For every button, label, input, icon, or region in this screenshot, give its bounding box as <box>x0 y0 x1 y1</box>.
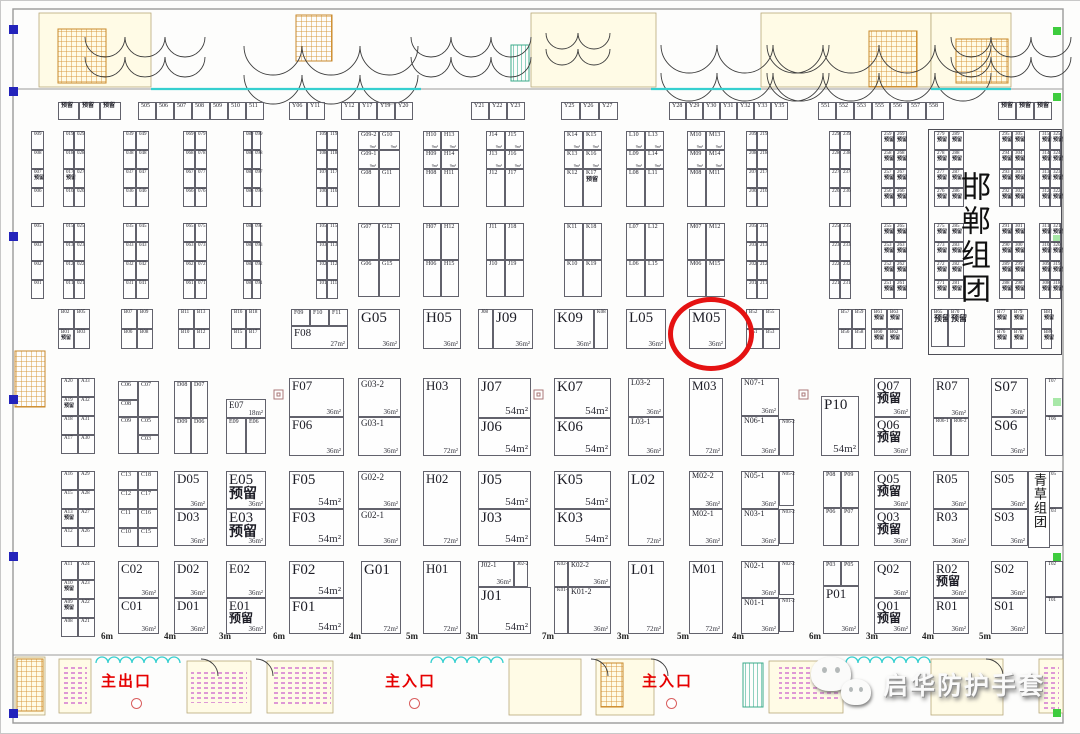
booth-cell-label: 013 <box>66 243 74 249</box>
booth-cell-232: 232 <box>840 261 851 280</box>
booth-cell-label: B62 <box>890 330 898 336</box>
booth-cell-label: 025 <box>77 224 85 230</box>
booth-L02: L0272m² <box>628 471 664 546</box>
booth-area: 36m² <box>1010 590 1025 597</box>
booth-cell-H10: H109m² <box>423 131 441 150</box>
booth-cell-label: B11 <box>181 310 189 316</box>
booth-label: F10 <box>313 310 322 317</box>
booth-cell-label: 552 <box>839 103 848 110</box>
booth-cell-label: Y12 <box>344 103 354 110</box>
booth-label: Q02 <box>877 562 899 577</box>
booth-cell-L08: L08 <box>626 169 645 207</box>
booth-cell-C11: C11 <box>118 509 138 528</box>
booth-cell-207: 207 <box>746 169 757 188</box>
booth-K03: K0354m² <box>554 509 611 546</box>
booth-cell-预留: 预留 <box>58 102 79 120</box>
booth-cell-area: 9m² <box>716 164 722 168</box>
booth-cell-205: 205 <box>746 223 757 242</box>
booth-cell-106: 106 <box>316 188 327 207</box>
booth-label: P01 <box>826 587 846 602</box>
booth-D01: D0136m² <box>174 598 208 634</box>
booth-cell-label: A33 <box>81 379 90 385</box>
booth-cell-label: 212 <box>760 262 768 268</box>
booth-K08: K08 <box>594 309 608 349</box>
booth-cell-A13: A13预留 <box>61 509 78 528</box>
booth-area: 72m² <box>443 538 458 545</box>
booth-H01: H0172m² <box>423 561 461 634</box>
booth-cell-093: 093 <box>252 242 261 261</box>
booth-label: K09 <box>557 310 583 327</box>
booth-label: F03 <box>292 510 315 527</box>
booth-label: G05 <box>361 310 387 327</box>
booth-C06: C06 <box>118 381 138 400</box>
booth-cell-label: M14 <box>709 151 720 158</box>
aisle-width-label: 3m <box>866 631 878 641</box>
booth-label: S02 <box>994 562 1014 577</box>
booth-cell-118: 118 <box>327 150 338 169</box>
booth-D06: D06 <box>191 418 208 454</box>
booth-cell-label: C17 <box>141 491 151 498</box>
booth-P09: P09 <box>841 471 859 508</box>
booth-cell-A28: A28 <box>78 490 95 509</box>
booth-cell-label: 005 <box>34 224 42 230</box>
booth-cell-091: 091 <box>252 280 261 299</box>
booth-cell-043: 043 <box>136 242 149 261</box>
booth-cell-069: 069 <box>183 131 195 150</box>
booth-cell-H12: H12 <box>441 223 459 260</box>
booth-cell-A24: A24 <box>78 561 95 580</box>
booth-cell-area: 9m² <box>697 164 703 168</box>
booth-cell-label: J10 <box>489 261 497 268</box>
booth-cell-K16: K169m² <box>583 150 602 169</box>
booth-cell-A12: A12 <box>61 528 78 547</box>
booth-cell-G07: G07 <box>358 223 379 260</box>
booth-cell-label: B18 <box>249 310 257 316</box>
booth-area: 36m² <box>1010 626 1025 633</box>
booth-Q01: Q01预留36m² <box>874 598 911 634</box>
reserved-label: 预留 <box>897 176 907 182</box>
booth-cell-label: J11 <box>489 224 497 231</box>
booth-cell-086: 086 <box>243 188 252 207</box>
booth-area: 36m² <box>761 408 776 415</box>
booth-cell-label: 096 <box>255 189 263 195</box>
booth-cell-label: Y20 <box>398 103 408 110</box>
booth-cell-012: 012 <box>63 261 74 280</box>
booth-label: J09 <box>496 310 517 327</box>
booth-cell-label: 215 <box>760 224 768 230</box>
booth-cell-label: 259 <box>884 132 892 138</box>
booth-cell-J14: J149m² <box>486 131 505 150</box>
reserved-label: 预留 <box>64 404 74 410</box>
booth-label: L05 <box>629 310 653 327</box>
booth-cell-label: H08 <box>426 170 436 177</box>
booth-cell-label: 227 <box>832 170 840 176</box>
reserved-label: 预留 <box>897 138 907 144</box>
booth-area: 54m² <box>585 406 608 417</box>
aisle-width-label: 3m <box>617 631 629 641</box>
booth-label: N06-1 <box>744 417 764 426</box>
booth-H02: H0272m² <box>423 471 461 546</box>
booth-cell-K18: K18 <box>583 223 602 260</box>
booth-cell-505: 505 <box>138 102 156 120</box>
booth-N05-1: N05-136m² <box>741 471 779 509</box>
booth-cell-039: 039 <box>123 131 136 150</box>
booth-cell-label: 112 <box>330 262 337 268</box>
booth-cell-Y33: Y33 <box>754 102 771 120</box>
booth-cell-label: 072 <box>198 262 206 268</box>
booth-cell-label: G06 <box>361 261 371 268</box>
booth-cell-G09-1: G09-19m² <box>358 150 379 169</box>
booth-cell-label: Y19 <box>380 103 390 110</box>
booth-cell-label: 555 <box>875 103 884 110</box>
booth-cell-Y30: Y30 <box>703 102 720 120</box>
booth-label: K03 <box>557 510 583 527</box>
booth-cell-036: 036 <box>123 188 136 207</box>
booth-area: 36m² <box>1010 448 1025 455</box>
booth-label: N02-2 <box>782 562 795 568</box>
booth-cell-038: 038 <box>123 150 136 169</box>
booth-cell-label: K13 <box>567 151 577 158</box>
booth-cell-101: 101 <box>316 280 327 299</box>
booth-label: R06-2 <box>954 419 967 425</box>
booth-cell-label: 037 <box>126 170 134 176</box>
booth-cell-label: Y30 <box>706 103 716 110</box>
booth-N06-2: N06-2 <box>779 419 794 456</box>
booth-cell-area: 9m² <box>593 145 599 149</box>
booth-cell-label: 258 <box>884 151 892 157</box>
booth-label: R03 <box>936 510 958 525</box>
booth-L03-1: L03-136m² <box>628 417 664 456</box>
booth-cell-A11: A11 <box>61 561 78 580</box>
booth-cell-label: G07 <box>361 224 371 231</box>
booth-S01: S0136m² <box>991 598 1028 634</box>
aisle-width-label: 5m <box>677 631 689 641</box>
reserved-label: 预留 <box>874 316 884 322</box>
booth-P03: P03 <box>823 561 841 586</box>
booth-layer: G0536m²H0536m²J08J0936m²K0936m²K08L0536m… <box>1 1 1080 733</box>
booth-cell-J17: J17 <box>505 169 524 207</box>
reserved-label: 预留 <box>586 177 598 184</box>
booth-cell-J19: J19 <box>505 260 524 297</box>
booth-cell-label: 105 <box>319 224 327 230</box>
booth-cell-label: B57 <box>841 310 849 316</box>
reserved-label: 预留 <box>877 431 901 444</box>
booth-cell-229: 229 <box>829 131 840 150</box>
booth-cell-label: Y11 <box>310 103 320 110</box>
booth-cell-label: 049 <box>139 132 147 138</box>
booth-cell-B57: B57 <box>838 309 852 329</box>
booth-label: K06 <box>557 419 583 436</box>
booth-cell-area: 9m² <box>655 145 661 149</box>
booth-cell-506: 506 <box>156 102 174 120</box>
booth-cell-212: 212 <box>757 261 768 280</box>
booth-cell-Y32: Y32 <box>737 102 754 120</box>
booth-F10: F10 <box>310 309 329 326</box>
booth-label: D03 <box>177 510 199 525</box>
booth-cell-label: 219 <box>760 132 768 138</box>
booth-cell-A10: A10预留 <box>61 580 78 599</box>
booth-cell-B09: B09 <box>137 309 153 329</box>
reserved-label: 预留 <box>897 157 907 163</box>
reserved-label: 预留 <box>897 195 907 201</box>
booth-cell-C17: C17 <box>138 490 158 509</box>
aisle-width-label: 6m <box>809 631 821 641</box>
booth-cell-C18: C18 <box>138 471 158 490</box>
booth-cell-label: 预留 <box>1037 103 1049 110</box>
booth-cell-label: Y21 <box>474 103 484 110</box>
booth-L01: L0172m² <box>628 561 664 634</box>
booth-Q07: Q07预留36m² <box>874 378 911 417</box>
booth-cell-area: 9m² <box>515 164 521 168</box>
reserved-label: 预留 <box>229 612 253 625</box>
booth-cell-label: L08 <box>629 170 639 177</box>
aisle-width-label: 5m <box>979 631 991 641</box>
booth-cell-label: A29 <box>81 472 90 478</box>
booth-cell-label: 099 <box>255 132 263 138</box>
booth-label: S03 <box>994 510 1014 525</box>
booth-cell-B07: B07 <box>121 309 137 329</box>
booth-cell-B59: B59 <box>852 309 866 329</box>
booth-cell-label: 028 <box>77 151 85 157</box>
booth-cell-025: 025 <box>74 223 85 242</box>
booth-cell-label: 551 <box>821 103 830 110</box>
booth-cell-label: H06 <box>426 261 436 268</box>
booth-cell-Y19: Y19 <box>377 102 395 120</box>
booth-cell-label: 066 <box>186 189 194 195</box>
booth-cell-095: 095 <box>252 223 261 242</box>
booth-cell-265: 265预留 <box>894 223 907 242</box>
booth-cell-M12: M12 <box>706 223 725 260</box>
booth-cell-218: 218 <box>757 150 768 169</box>
booth-cell-M09: M099m² <box>687 150 706 169</box>
booth-cell-B53: B53 <box>763 329 780 349</box>
booth-cell-117: 117 <box>327 169 338 188</box>
highlight-circle-M05 <box>668 297 754 371</box>
booth-F11: F11 <box>329 309 348 326</box>
booth-label: K08 <box>597 310 606 316</box>
booth-cell-217: 217 <box>757 169 768 188</box>
booth-cell-label: J16 <box>508 151 516 158</box>
booth-cell-label: 048 <box>139 151 147 157</box>
booth-cell-B63: B63预留 <box>887 309 903 329</box>
booth-G03-1: G03-136m² <box>358 417 401 456</box>
booth-cell-label: 038 <box>126 151 134 157</box>
booth-cell-label: 236 <box>843 189 851 195</box>
booth-cell-L09: L099m² <box>626 150 645 169</box>
booth-cell-label: K15 <box>586 132 596 139</box>
reserved-label: 预留 <box>884 230 894 236</box>
booth-area: 36m² <box>576 341 591 348</box>
booth-cell-213: 213 <box>757 242 768 261</box>
booth-cell-label: A09 <box>64 600 73 606</box>
booth-area: 36m² <box>515 341 530 348</box>
booth-cell-049: 049 <box>136 131 149 150</box>
booth-cell-017: 017预留 <box>63 169 74 188</box>
booth-cell-202: 202 <box>746 261 757 280</box>
booth-cell-C15: C15 <box>138 528 158 547</box>
booth-cell-016: 016 <box>63 188 74 207</box>
booth-cell-J12: J12 <box>486 169 505 207</box>
booth-cell-label: A11 <box>64 562 72 568</box>
booth-cell-092: 092 <box>252 261 261 280</box>
booth-cell-预留: 预留 <box>998 102 1016 120</box>
booth-cell-label: Y32 <box>740 103 750 110</box>
booth-cell-label: 017 <box>66 170 74 176</box>
booth-cell-label: G09-2 <box>361 132 376 139</box>
booth-cell-label: A26 <box>81 529 90 535</box>
booth-label: R01 <box>936 599 958 614</box>
booth-cell-061: 061 <box>183 280 195 299</box>
booth-cell-048: 048 <box>136 150 149 169</box>
booth-cell-label: H09 <box>426 151 436 158</box>
booth-cell-label: C16 <box>141 510 151 517</box>
booth-cell-553: 553 <box>854 102 872 120</box>
booth-cell-label: A28 <box>81 491 90 497</box>
booth-P01: P0136m² <box>823 586 859 634</box>
booth-cell-228: 228 <box>829 150 840 169</box>
booth-label: L02 <box>631 472 655 489</box>
booth-label: J02-2 <box>517 562 528 568</box>
booth-S02: S0236m² <box>991 561 1028 598</box>
booth-label: S01 <box>994 599 1014 614</box>
booth-cell-label: 078 <box>198 151 206 157</box>
booth-cell-219: 219 <box>757 131 768 150</box>
booth-cell-label: 075 <box>198 224 206 230</box>
booth-cell-Y12: Y12 <box>341 102 359 120</box>
booth-label: T02 <box>1048 562 1056 568</box>
booth-label: F02 <box>292 562 315 579</box>
booth-cell-023: 023 <box>74 242 85 261</box>
booth-cell-071: 071 <box>195 280 207 299</box>
booth-N01-2: N01-2 <box>779 598 794 632</box>
booth-cell-label: 077 <box>198 170 206 176</box>
booth-area: 54m² <box>585 497 608 508</box>
booth-cell-label: B58 <box>855 330 863 336</box>
booth-cell-label: 226 <box>832 189 840 195</box>
booth-cell-label: 556 <box>893 103 902 110</box>
booth-cell-066: 066 <box>183 188 195 207</box>
booth-cell-label: Y23 <box>510 103 520 110</box>
booth-cell-label: 268 <box>897 151 905 157</box>
aisle-width-label: 6m <box>101 631 113 641</box>
booth-cell-area: 9m² <box>515 145 521 149</box>
booth-cell-M06: M06 <box>687 260 706 297</box>
booth-area: 36m² <box>1010 409 1025 416</box>
booth-cell-B17: B17 <box>246 329 261 349</box>
booth-cell-label: B56 <box>841 330 849 336</box>
booth-cell-label: 238 <box>843 151 851 157</box>
booth-label: M02-2 <box>692 472 714 481</box>
booth-cell-Y23: Y23 <box>507 102 525 120</box>
booth-cell-label: 202 <box>749 262 757 268</box>
booth-label: D06 <box>194 419 204 426</box>
booth-cell-label: 039 <box>126 132 134 138</box>
booth-cell-label: 071 <box>198 281 206 287</box>
booth-cell-A26: A26 <box>78 528 95 547</box>
booth-cell-067: 067 <box>183 169 195 188</box>
reserved-label: 预留 <box>884 287 894 293</box>
booth-cell-259: 259预留 <box>881 131 894 150</box>
booth-cell-L06: L06 <box>626 260 645 297</box>
booth-cell-116: 116 <box>327 188 338 207</box>
booth-cell-label: L10 <box>629 132 639 139</box>
booth-cell-label: 265 <box>897 224 905 230</box>
booth-R07: R0736m² <box>933 378 969 418</box>
exhibition-floor-plan: G0536m²H0536m²J08J0936m²K0936m²K08L0536m… <box>0 0 1080 734</box>
booth-cell-label: 235 <box>843 224 851 230</box>
booth-cell-label: 508 <box>195 103 204 110</box>
booth-cell-K15: K159m² <box>583 131 602 150</box>
booth-cell-Y25: Y25 <box>561 102 580 120</box>
booth-R03: R0336m² <box>933 509 969 546</box>
booth-cell-area: 9m² <box>432 164 438 168</box>
booth-cell-253: 253预留 <box>881 242 894 261</box>
booth-cell-B60: B60预留 <box>871 329 887 349</box>
booth-cell-007: 007预留 <box>31 169 44 188</box>
booth-label: P09 <box>844 472 853 479</box>
booth-cell-label: A16 <box>64 472 73 478</box>
booth-T01: T01 <box>1045 597 1063 634</box>
booth-cell-085: 085 <box>243 223 252 242</box>
booth-cell-223: 223 <box>829 242 840 261</box>
booth-area: 54m² <box>318 586 341 597</box>
booth-cell-label: 069 <box>186 132 194 138</box>
booth-label: N03-1 <box>744 510 764 519</box>
booth-cell-label: A27 <box>81 510 90 516</box>
booth-cell-label: 201 <box>749 281 757 287</box>
booth-cell-label: B08 <box>140 330 148 336</box>
booth-cell-label: 092 <box>255 262 263 268</box>
booth-cell-A31: A31 <box>78 416 95 435</box>
booth-cell-G15: G15 <box>379 260 400 297</box>
reserved-label: 预留 <box>884 268 894 274</box>
booth-N03-1: N03-136m² <box>741 509 779 546</box>
booth-area: 36m² <box>190 538 205 545</box>
booth-cell-label: Y26 <box>583 103 593 110</box>
booth-cell-B01: B01预留 <box>58 329 74 349</box>
booth-cell-label: 098 <box>255 151 263 157</box>
booth-C07: C07 <box>138 381 159 417</box>
booth-cell-label: M06 <box>690 261 701 268</box>
booth-cell-A16: A16 <box>61 471 78 490</box>
aisle-width-label: 5m <box>406 631 418 641</box>
booth-cell-label: M07 <box>690 224 701 231</box>
reserved-label: 预留 <box>897 249 907 255</box>
booth-cell-area: 9m² <box>716 145 722 149</box>
booth-cell-L10: L109m² <box>626 131 645 150</box>
booth-cell-Y35: Y35 <box>771 102 788 120</box>
booth-cell-G10: G109m² <box>379 131 400 150</box>
booth-cell-H06: H06 <box>423 260 441 297</box>
booth-cell-096: 096 <box>252 188 261 207</box>
booth-J08: J08 <box>478 309 493 349</box>
booth-cell-J13: J139m² <box>486 150 505 169</box>
booth-cell-035: 035 <box>123 223 136 242</box>
booth-J03: J0354m² <box>478 509 531 546</box>
booth-cell-label: G15 <box>382 261 392 268</box>
booth-cell-B15: B15 <box>231 329 246 349</box>
booth-cell-072: 072 <box>195 261 207 280</box>
booth-label: N05-2 <box>782 472 795 478</box>
booth-cell-label: M13 <box>709 132 720 139</box>
booth-cell-label: M12 <box>709 224 720 231</box>
booth-cell-Y26: Y26 <box>580 102 599 120</box>
booth-area: 36m² <box>141 590 156 597</box>
booth-cell-label: A22 <box>81 600 90 606</box>
booth-cell-A18: A18 <box>61 416 78 435</box>
booth-cell-C13: C13 <box>118 471 138 490</box>
booth-cell-label: K10 <box>567 261 577 268</box>
